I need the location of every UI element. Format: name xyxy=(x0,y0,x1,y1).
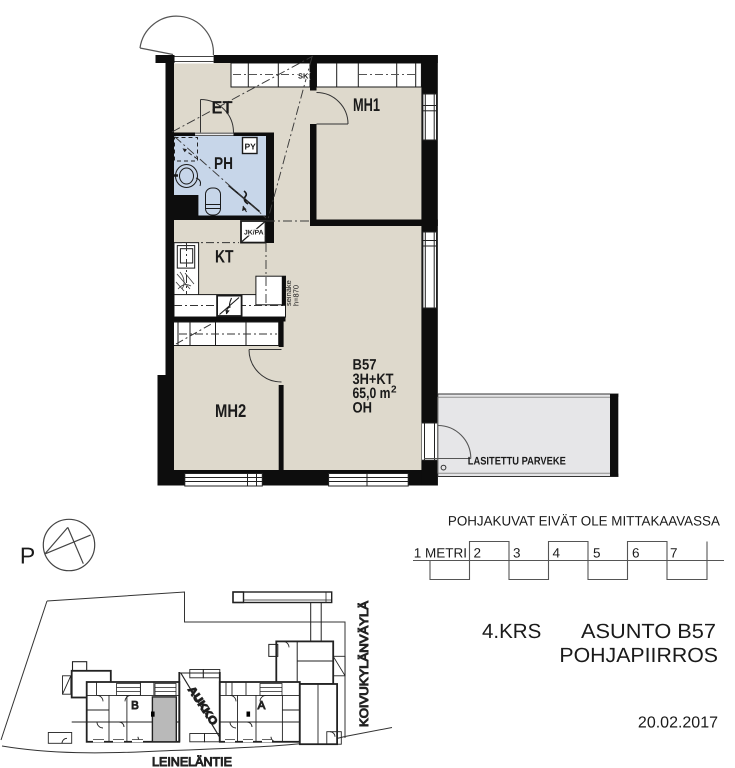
svg-text:6: 6 xyxy=(632,546,640,561)
svg-text:3: 3 xyxy=(513,546,521,561)
svg-text:7: 7 xyxy=(670,546,678,561)
svg-text:POHJAKUVAT EIVÄT OLE MITTAKAAV: POHJAKUVAT EIVÄT OLE MITTAKAAVASSA xyxy=(448,514,721,529)
svg-text:4.KRS: 4.KRS xyxy=(482,620,541,643)
svg-text:KOIVUKYLÄNVÄYLÄ: KOIVUKYLÄNVÄYLÄ xyxy=(357,601,371,727)
svg-text:PY: PY xyxy=(245,142,257,152)
svg-text:AUKKO: AUKKO xyxy=(185,684,220,728)
svg-text:1 METRI: 1 METRI xyxy=(414,546,467,561)
svg-text:LEINELÄNTIE: LEINELÄNTIE xyxy=(152,755,232,768)
svg-text:2: 2 xyxy=(391,385,397,396)
svg-text:h=870: h=870 xyxy=(292,285,301,306)
svg-text:ASUNTO B57: ASUNTO B57 xyxy=(581,620,716,643)
svg-text:PH: PH xyxy=(214,154,233,173)
svg-text:KT: KT xyxy=(215,247,234,267)
svg-text:JK/PA: JK/PA xyxy=(244,230,264,237)
svg-text:SK: SK xyxy=(298,72,309,81)
svg-text:P: P xyxy=(20,543,35,569)
svg-text:POHJAPIIRROS: POHJAPIIRROS xyxy=(559,644,718,667)
svg-text:OH: OH xyxy=(353,399,373,416)
svg-text:MH2: MH2 xyxy=(215,400,246,421)
svg-text:ET: ET xyxy=(212,98,233,118)
svg-text:4: 4 xyxy=(553,546,561,561)
svg-text:LASITETTU PARVEKE: LASITETTU PARVEKE xyxy=(468,456,566,468)
svg-text:20.02.2017: 20.02.2017 xyxy=(638,715,718,732)
svg-text:2: 2 xyxy=(474,546,482,561)
svg-text:B: B xyxy=(131,700,139,712)
svg-text:MH1: MH1 xyxy=(353,94,380,115)
svg-text:A: A xyxy=(258,700,266,712)
svg-text:5: 5 xyxy=(593,546,601,561)
